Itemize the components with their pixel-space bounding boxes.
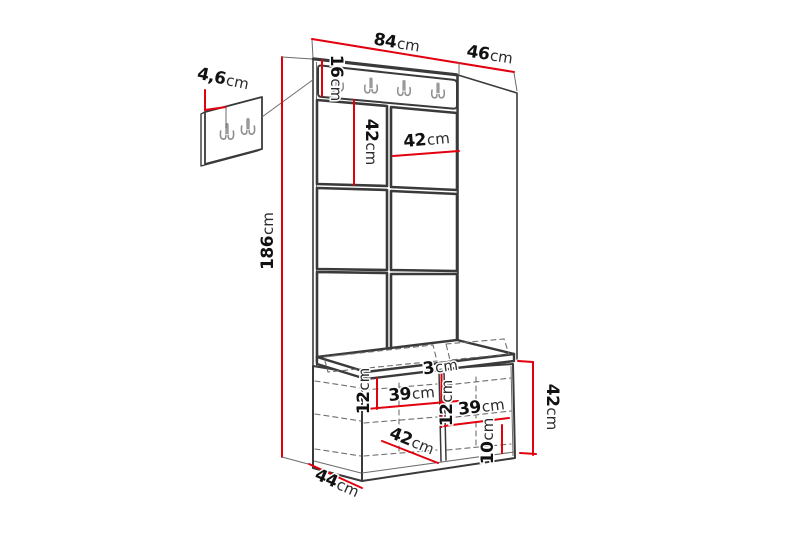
upholstered-panel (391, 191, 457, 271)
side-panel (458, 75, 517, 359)
upholstered-panel (317, 188, 387, 270)
hook-panel-detail (201, 97, 262, 166)
dimension-label-hook-inset: 4,6cm (195, 64, 250, 94)
dimension-label-shelf-left: 12cm (354, 368, 374, 415)
dimension-label-panel-height: 42cm (361, 119, 381, 166)
detail-connector-line (262, 79, 314, 117)
dimension-diagram: 84cm 46cm 16cm 4,6cm 42cm 42cm 186cm 3cm… (0, 0, 800, 533)
upholstered-panel (317, 272, 387, 362)
dimension-label-plinth: 10cm (478, 418, 498, 465)
dimension-label-total-height: 186cm (258, 212, 278, 270)
dimension-label-bench-height: 42cm (542, 384, 562, 431)
dimension-label-shelf-mid: 12cm (437, 380, 457, 427)
dimension-label-rail-height: 16cm (326, 55, 346, 102)
dimension-line-hook-inset (205, 90, 226, 110)
